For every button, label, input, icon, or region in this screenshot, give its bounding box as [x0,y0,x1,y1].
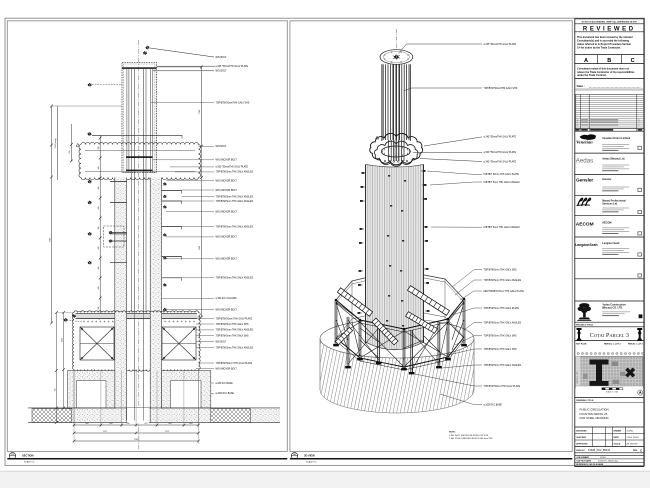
svg-text:500: 500 [98,207,100,210]
svg-text:AS SHOWN: AS SHOWN [627,442,638,445]
svg-text:a 300 R.C COLUMN: a 300 R.C COLUMN [216,298,237,300]
svg-text:TOP/BTM 50mm THK GALV PLATE: TOP/BTM 50mm THK GALV PLATE [216,318,253,321]
svg-text:844: 844 [169,423,172,425]
svg-text:TOP/BTM 50mmTHK GALV SHS: TOP/BTM 50mmTHK GALV SHS [484,87,518,90]
svg-text:A: A [584,58,588,64]
svg-text:PROJECT TITLE: PROJECT TITLE [576,324,594,326]
svg-text:TOP/BTM 5mm THK GALV PLATE: TOP/BTM 5mm THK GALV PLATE [484,307,520,310]
svg-text:Gensler: Gensler [602,178,611,181]
svg-text:SCALE 1:5: SCALE 1:5 [24,460,35,463]
svg-text:2544: 2544 [134,439,138,441]
svg-text:1272: 1272 [103,431,107,433]
svg-text:a 300 *50mmTHK GALV PLATE: a 300 *50mmTHK GALV PLATE [484,151,517,154]
svg-text:W/S BOLT: W/S BOLT [216,146,227,148]
svg-text:200: 200 [127,423,130,425]
svg-text:S.WND: S.WND [627,430,634,432]
svg-text:500: 500 [98,147,100,150]
svg-text:a 345 *50mmTHK GALV PLATE: a 345 *50mmTHK GALV PLATE [484,136,517,139]
svg-text:TOP/BTM 5mm THK GALV SHS: TOP/BTM 5mm THK GALV SHS [484,269,518,272]
svg-text:TOP/BTM 5mm THK GALV SHS: TOP/BTM 5mm THK GALV SHS [484,348,518,351]
svg-text:DWG NO: DWG NO [576,450,585,452]
svg-text:2700: 2700 [49,238,51,242]
svg-text:TOP/BTM 5mm THK GALV ANGLES: TOP/BTM 5mm THK GALV ANGLES [216,329,254,332]
svg-text:500: 500 [98,187,100,190]
svg-text:2. ALL FILLET WELDED SHOULD BE: 2. ALL FILLET WELDED SHOULD BE 3mm THK. [449,437,493,440]
svg-text:SCALE: SCALE [614,442,621,445]
svg-text:a 345 *50mmTHK GALV PLATE: a 345 *50mmTHK GALV PLATE [216,65,249,68]
svg-text:PARCEL 1, LOT 2: PARCEL 1, LOT 2 [604,343,621,346]
svg-text:Gensler: Gensler [576,178,593,183]
svg-text:TOP/BTM 5mm THK GALV ANGLES: TOP/BTM 5mm THK GALV ANGLES [216,277,254,280]
svg-text:FOR STEEL DRAWING: FOR STEEL DRAWING [580,416,609,420]
svg-text:Aedas (Macau) Ltd.: Aedas (Macau) Ltd. [602,157,625,160]
svg-text:DATE: DATE [614,436,620,439]
svg-text:TOP/BTM 5mm THK GALV ANGLES: TOP/BTM 5mm THK GALV ANGLES [484,364,522,367]
svg-text:(Macau) CO. LTD.: (Macau) CO. LTD. [602,307,623,310]
svg-text:REV: REV [633,450,638,452]
svg-text:472: 472 [145,423,148,425]
svg-text:W/S ANCHOR BOLT: W/S ANCHOR BOLT [216,211,238,214]
svg-text:1346 (unclg): 1346 (unclg) [55,138,57,148]
svg-text:W/S BOLT: W/S BOLT [216,57,227,59]
svg-text:TOP/BTM 50mm THK GALV PLATE: TOP/BTM 50mm THK GALV PLATE [216,362,253,365]
svg-text:AECOM: AECOM [602,221,611,224]
svg-text:W/S ANCHOR BOLT: W/S ANCHOR BOLT [216,179,238,182]
svg-text:500: 500 [98,287,100,290]
svg-text:W/S ANCHOR BOLT: W/S ANCHOR BOLT [216,189,238,192]
svg-text:Date :: Date : [577,84,585,88]
svg-text:W/S ANCHOR BOLT: W/S ANCHOR BOLT [216,308,238,311]
svg-text:NOTE:: NOTE: [449,432,456,434]
svg-text:2368: 2368 [199,246,201,250]
svg-text:1786: 1786 [199,110,201,114]
svg-text:500: 500 [98,267,100,270]
svg-text:AECOM: AECOM [576,221,594,227]
svg-text:3D VIEW: 3D VIEW [304,453,315,457]
svg-text:a 300 *50mmTHK GALV PLATE: a 300 *50mmTHK GALV PLATE [216,166,249,169]
svg-text:W/S BOLT: W/S BOLT [216,71,227,73]
svg-text:TOP/BTM 50mmTHK GALV SHS: TOP/BTM 50mmTHK GALV SHS [216,101,250,104]
svg-text:PARCEL 1, LOT 3: PARCEL 1, LOT 3 [628,343,643,346]
svg-text:5.4 for action by the Trade Co: 5.4 for action by the Trade Contractor. [577,46,621,49]
svg-text:Services Ltd.: Services Ltd. [602,202,618,205]
svg-text:500: 500 [98,167,100,170]
svg-text:800: 800 [86,423,89,425]
svg-text:1 NOV 2008 B: 1 NOV 2008 B [627,437,640,439]
svg-text:TOP/BTM 5mm THK GALV ANGLES: TOP/BTM 5mm THK GALV ANGLES [216,171,254,174]
svg-text:SCALE 1:5: SCALE 1:5 [306,460,317,463]
svg-text:1272: 1272 [165,431,169,433]
svg-text:PUBLIC CIRCULATION: PUBLIC CIRCULATION [580,408,609,412]
svg-text:SECTION: SECTION [22,453,34,457]
svg-text:C: C [631,58,635,64]
svg-text:Venetian Orient Limited: Venetian Orient Limited [602,137,630,140]
svg-text:SCALE 1 : 1000: SCALE 1 : 1000 [606,391,618,394]
svg-text:DRAWN: DRAWN [614,429,622,432]
svg-text:B: B [607,58,611,64]
svg-text:TOP/BTM 5mm THK GALV SHS: TOP/BTM 5mm THK GALV SHS [484,335,518,338]
svg-text:500: 500 [98,247,100,250]
svg-text:800: 800 [190,423,193,425]
svg-text:a 300 R.C BASE: a 300 R.C BASE [216,382,234,385]
svg-text:REFERENCE CAD FILE NAME: REFERENCE CAD FILE NAME [576,463,604,466]
svg-text:Aedas: Aedas [576,157,594,164]
svg-text:DRAWING TITLE: DRAWING TITLE [576,399,594,402]
svg-text:5152B_PC2_B5010: 5152B_PC2_B5010 [588,449,611,452]
svg-text:TOP/BTM 5mm THK GALV ANGLES: TOP/BTM 5mm THK GALV ANGLES [216,200,254,203]
svg-text:W/S ANCHOR BOLT: W/S ANCHOR BOLT [216,258,238,261]
svg-text:TOP/BTM 5mm THK GALV ANGLES: TOP/BTM 5mm THK GALV ANGLES [216,195,254,198]
svg-text:500: 500 [98,227,100,230]
svg-text:TOP/BTM 5mm THK GALV ANGLES: TOP/BTM 5mm THK GALV ANGLES [216,225,254,228]
svg-text:MID/TOP/BTM 5mm THK GALV PLATE: MID/TOP/BTM 5mm THK GALV PLATE [484,290,525,293]
svg-text:Langdon Seah: Langdon Seah [602,242,620,245]
svg-text:APPROVED: APPROVED [576,442,588,445]
svg-text:TOP/BTM 5mm THK GALV ANGLES: TOP/BTM 5mm THK GALV ANGLES [484,279,522,282]
svg-text:a 345 *50mmTHK GALV PLATE: a 345 *50mmTHK GALV PLATE [484,43,517,46]
svg-text:W/S BOLT: W/S BOLT [216,341,227,343]
svg-text:W/S ANCHOR BOLT: W/S ANCHOR BOLT [216,159,238,162]
svg-text:844: 844 [110,423,113,425]
svg-text:344: 344 [69,151,71,154]
svg-text:TOP/BTM 5mm THK GALV ANGLES: TOP/BTM 5mm THK GALV ANGLES [216,347,254,350]
svg-text:1152: 1152 [61,338,63,342]
svg-text:TOP/BTM 50mm THK GALV PLATE: TOP/BTM 50mm THK GALV PLATE [484,385,521,388]
svg-text:a 2000 R.C BASE: a 2000 R.C BASE [484,403,503,406]
svg-text:TOP/BTM 5mm THK GALV ANGLES: TOP/BTM 5mm THK GALV ANGLES [484,321,522,324]
svg-text:KEY PLAN: KEY PLAN [576,343,587,346]
svg-text:COTAI PARCEL 3: COTAI PARCEL 3 [590,332,629,339]
svg-text:a 2000 R.C BASE: a 2000 R.C BASE [216,392,235,395]
svg-text:CHECKED: CHECKED [576,437,586,439]
svg-text:DO NOT SCALE DRAWING. VERIFY A: DO NOT SCALE DRAWING. VERIFY ALL DIMENSI… [582,21,638,24]
svg-text:C/BTB/T 5mm THK GALV ANGLES: C/BTB/T 5mm THK GALV ANGLES [484,226,521,229]
svg-text:TOP/BTM 5mm THK GALV SHS: TOP/BTM 5mm THK GALV SHS [216,323,250,326]
svg-text:500: 500 [98,307,100,310]
svg-text:FOUNTAIN DETAIL 25: FOUNTAIN DETAIL 25 [580,412,608,416]
svg-text:762: 762 [54,389,56,392]
svg-text:Venetian: Venetian [576,139,593,144]
svg-text:C/BTB/T 5mm THK GALV ANGLES: C/BTB/T 5mm THK GALV ANGLES [484,181,521,184]
svg-text:C/BTB/T 50mm THK GALV PLATE: C/BTB/T 50mm THK GALV PLATE [484,173,520,176]
svg-text:a 345 *50mmTHK GALV PLATE: a 345 *50mmTHK GALV PLATE [484,160,517,163]
svg-text:DESIGNED: DESIGNED [576,430,587,432]
svg-text:under the Trade Contract.: under the Trade Contract. [577,74,607,77]
svg-text:W/S ANCHOR BOLT: W/S ANCHOR BOLT [216,367,238,370]
svg-text:W/S ANCHOR BOLT: W/S ANCHOR BOLT [216,236,238,239]
svg-text:1. ALL BOLT SHOULD BE FIXING O: 1. ALL BOLT SHOULD BE FIXING ON SITE. [449,434,489,437]
svg-text:TOP/BTM 5mm THK GALV SHS: TOP/BTM 5mm THK GALV SHS [216,335,250,338]
svg-text:LangdonSeah: LangdonSeah [575,243,597,247]
